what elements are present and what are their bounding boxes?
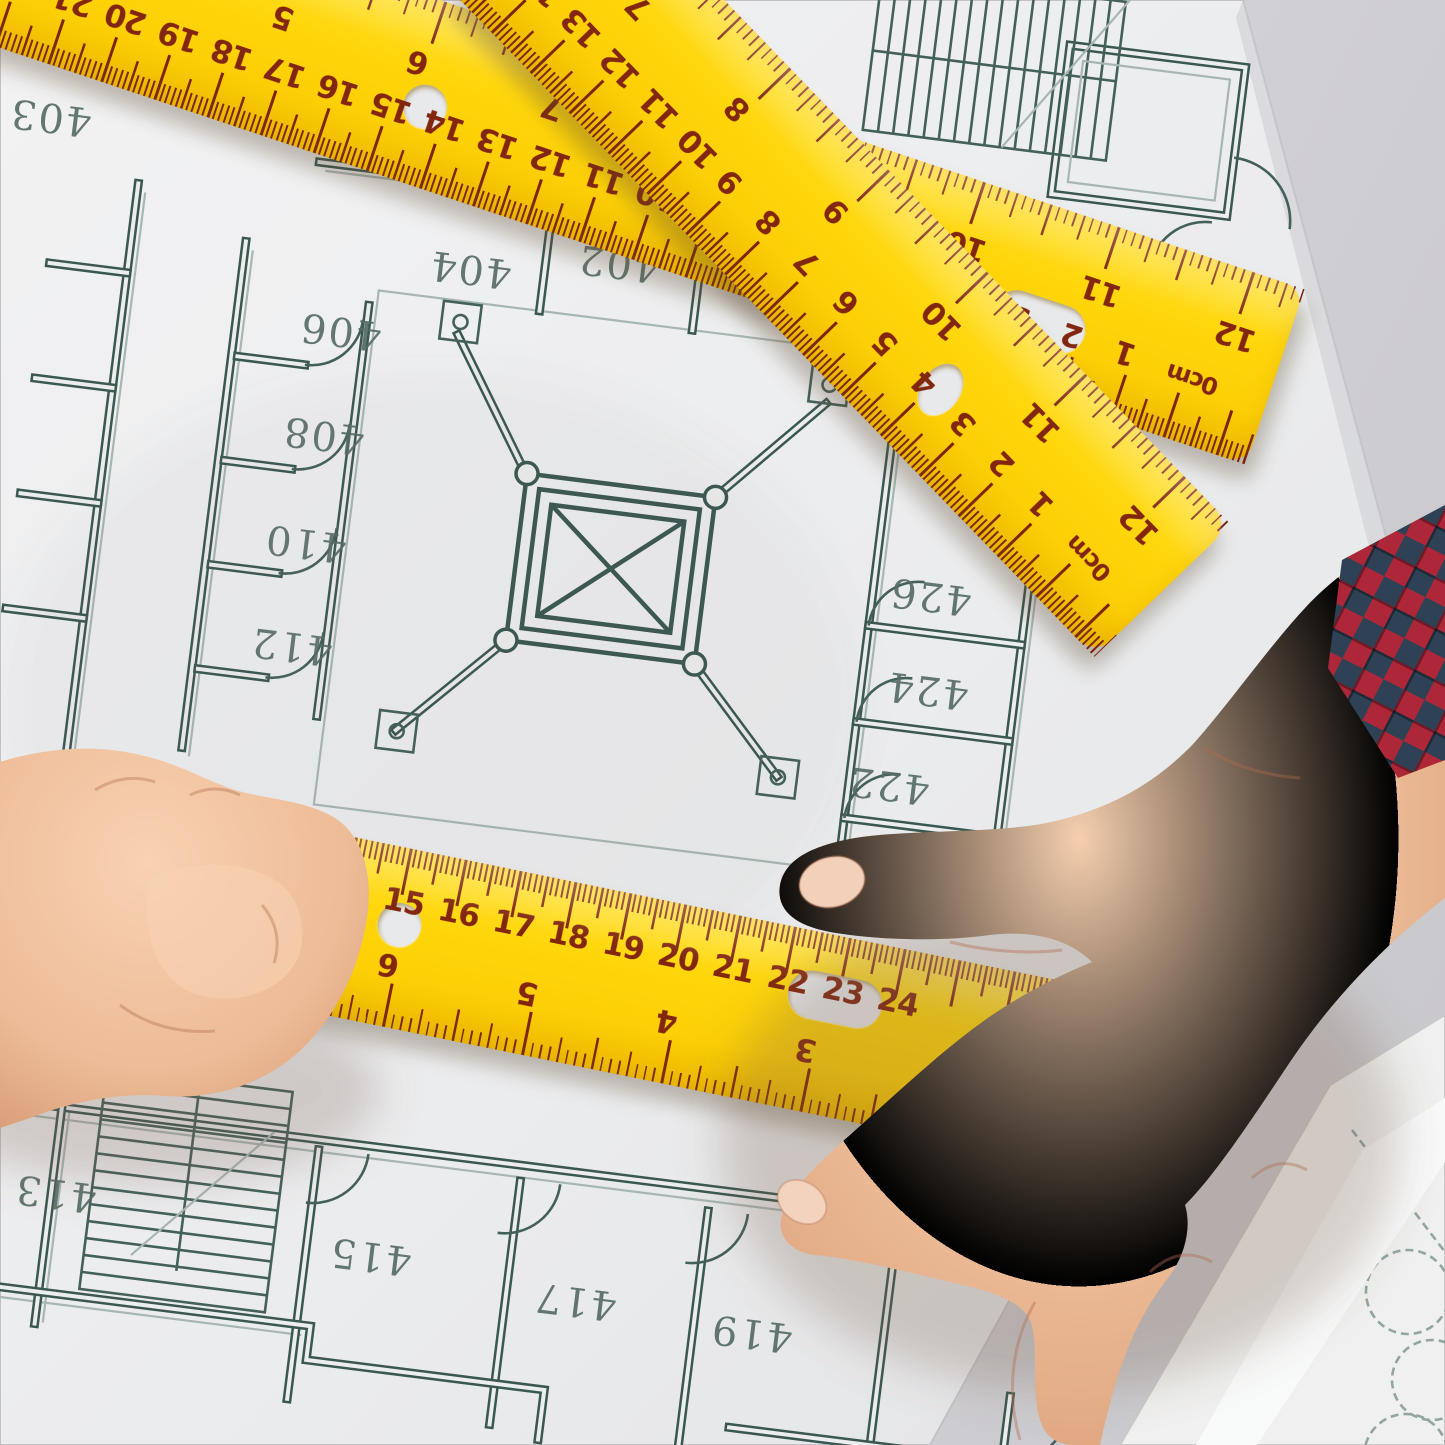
hands-layer bbox=[0, 0, 1445, 1445]
scene-photo: 4034044024064084104124264244224134154174… bbox=[0, 0, 1445, 1445]
